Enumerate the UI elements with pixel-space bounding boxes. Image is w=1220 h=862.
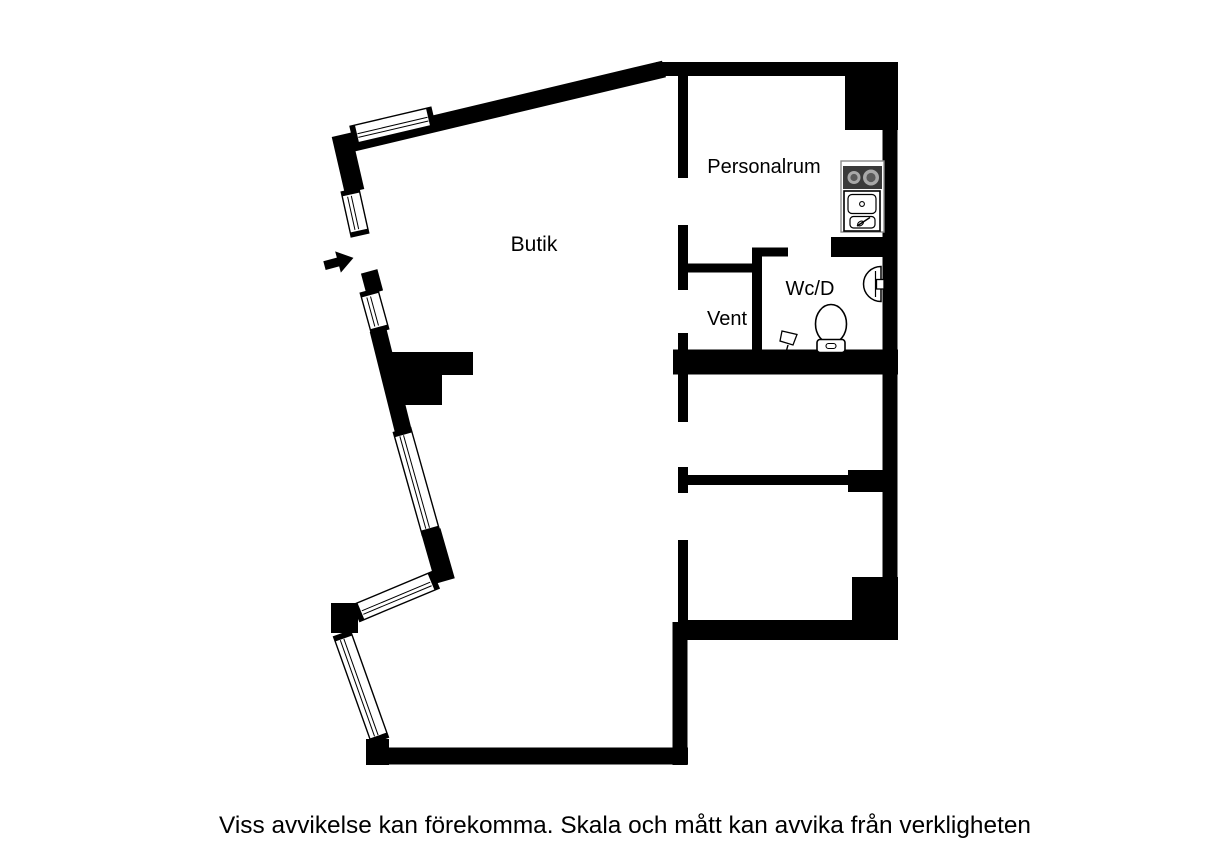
wall-pillar-upper: [390, 352, 473, 375]
floor-plan-drawing: Butik Personalrum Wc/D Vent Viss avvikel…: [0, 0, 1220, 862]
window-symbol: [334, 631, 389, 743]
east-rooms-divider-block: [848, 470, 883, 492]
butik-label: Butik: [511, 233, 558, 256]
entrance-arrow-icon: [322, 247, 357, 276]
window-symbol: [360, 288, 389, 333]
sink-symbol: [844, 191, 880, 231]
window-symbol: [341, 188, 369, 237]
floor-plan-page: Butik Personalrum Wc/D Vent Viss avvikel…: [0, 0, 1220, 862]
personalrum-label: Personalrum: [707, 156, 820, 178]
washbasin-symbol: [864, 267, 884, 302]
wcd-label: Wc/D: [786, 278, 835, 300]
window-symbol: [353, 572, 439, 622]
toilet-symbol: [816, 305, 847, 353]
window-symbol: [393, 428, 439, 536]
vent-label: Vent: [707, 308, 747, 330]
room-labels: Butik Personalrum Wc/D Vent: [511, 156, 835, 330]
kitchenette: [841, 161, 884, 232]
windows: [334, 107, 440, 743]
disclaimer-caption: Viss avvikelse kan förekomma. Skala och …: [219, 812, 1031, 839]
wall-block-top-right: [845, 62, 898, 130]
wall-pillar-lower: [390, 375, 442, 405]
wall-stub-below-kitchen: [831, 237, 884, 257]
wall-corner-bottom: [366, 739, 389, 765]
